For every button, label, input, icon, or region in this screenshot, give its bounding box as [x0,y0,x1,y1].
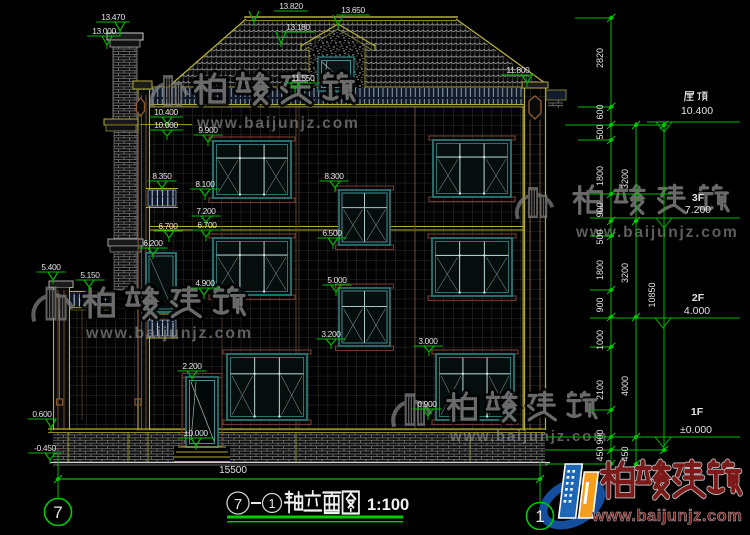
svg-text:11.550: 11.550 [292,73,316,83]
svg-text:1F: 1F [691,406,704,418]
svg-text:3F: 3F [692,192,705,204]
svg-text:0.600: 0.600 [32,409,52,419]
svg-text:7.200: 7.200 [196,206,216,216]
svg-text:13.650: 13.650 [341,5,365,15]
svg-text:3.200: 3.200 [321,329,341,339]
svg-text:13.470: 13.470 [101,12,125,22]
svg-text:500: 500 [595,124,605,139]
svg-text:10.400: 10.400 [681,105,713,117]
svg-text:1: 1 [535,507,544,526]
svg-text:1:100: 1:100 [367,496,409,514]
svg-text:±0.000: ±0.000 [184,428,208,438]
svg-text:450: 450 [595,446,605,461]
svg-text:5.000: 5.000 [327,275,347,285]
svg-text:450: 450 [620,446,630,461]
svg-text:0.900: 0.900 [417,399,437,409]
svg-text:900: 900 [595,202,605,217]
svg-text:2100: 2100 [595,380,605,400]
svg-text:9.900: 9.900 [198,125,218,135]
svg-text:7.200: 7.200 [685,204,711,216]
svg-text:8.100: 8.100 [195,179,215,189]
svg-text:900: 900 [595,297,605,312]
svg-text:8.350: 8.350 [152,171,172,181]
svg-text:13.820: 13.820 [279,1,303,11]
svg-text:4.000: 4.000 [684,305,710,317]
svg-text:7: 7 [234,496,242,513]
svg-text:6.200: 6.200 [143,238,163,248]
svg-text:1000: 1000 [595,330,605,350]
svg-text:13.180: 13.180 [286,22,310,32]
svg-text:15500: 15500 [219,465,247,476]
svg-text:1800: 1800 [595,166,605,186]
svg-text:6.700: 6.700 [197,220,217,230]
svg-text:13.000: 13.000 [92,26,116,36]
svg-text:6.500: 6.500 [322,228,342,238]
svg-text:8.300: 8.300 [324,171,344,181]
svg-text:www.baijunjz.com: www.baijunjz.com [196,115,360,132]
svg-text:±0.000: ±0.000 [680,424,712,436]
svg-text:11.800: 11.800 [507,65,531,75]
svg-text:-0.450: -0.450 [34,443,56,453]
svg-text:2.200: 2.200 [182,361,202,371]
svg-text:2820: 2820 [595,48,605,68]
svg-text:3200: 3200 [620,169,630,189]
svg-text:10.400: 10.400 [154,107,178,117]
svg-text:5.150: 5.150 [80,270,100,280]
svg-text:6.700: 6.700 [158,221,178,231]
svg-text:10850: 10850 [647,282,657,307]
svg-text:www.baijunjz.com: www.baijunjz.com [591,507,742,525]
svg-text:4.900: 4.900 [195,278,215,288]
svg-text:4000: 4000 [620,376,630,396]
svg-text:3200: 3200 [620,263,630,283]
svg-text:www.baijunjz.com: www.baijunjz.com [85,325,253,342]
svg-text:600: 600 [595,104,605,119]
svg-text:5.400: 5.400 [41,262,61,272]
svg-text:500: 500 [595,229,605,244]
svg-text:10.000: 10.000 [154,120,178,130]
svg-text:7: 7 [53,503,62,522]
svg-text:1800: 1800 [595,260,605,280]
svg-text:2F: 2F [692,292,705,304]
svg-text:3.000: 3.000 [418,336,438,346]
svg-text:1: 1 [268,496,275,511]
